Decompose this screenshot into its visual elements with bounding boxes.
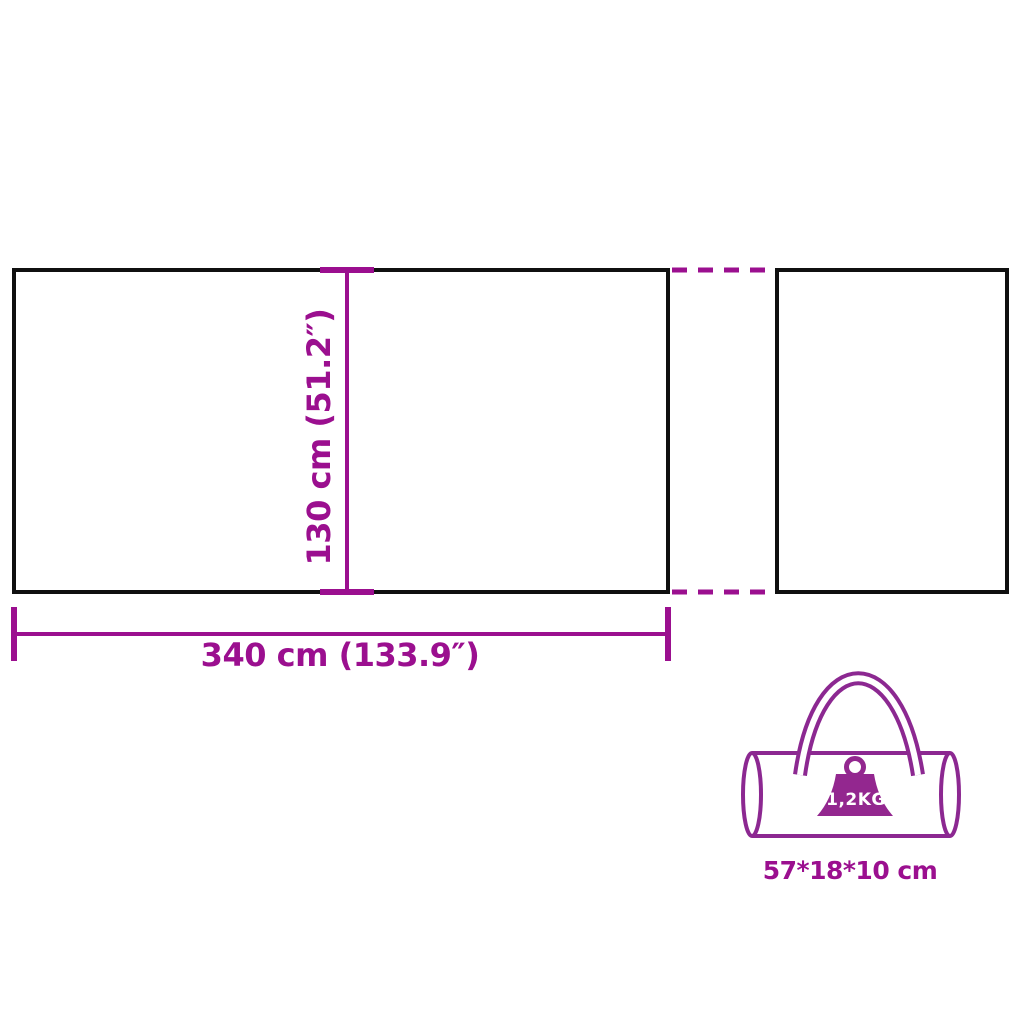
width-dimension: 340 cm (133.9″) bbox=[14, 607, 668, 674]
diagram-canvas: 130 cm (51.2″) 340 cm (133.9″) 1,2KG 57*… bbox=[0, 0, 1024, 1024]
bag-size-label: 57*18*10 cm bbox=[763, 856, 938, 885]
folded-panel-outline bbox=[777, 270, 1007, 592]
bag-left-end-cap bbox=[743, 753, 761, 836]
bag-right-end-cap bbox=[941, 753, 959, 836]
carry-bag-icon: 1,2KG 57*18*10 cm bbox=[743, 678, 959, 885]
weight-label: 1,2KG bbox=[826, 790, 886, 810]
weight-ring-icon bbox=[847, 759, 864, 776]
height-dimension-label: 130 cm (51.2″) bbox=[300, 309, 338, 566]
product-dimension-diagram: 130 cm (51.2″) 340 cm (133.9″) 1,2KG 57*… bbox=[0, 0, 1024, 1024]
width-dimension-label: 340 cm (133.9″) bbox=[201, 636, 480, 674]
main-panel-outline bbox=[14, 270, 668, 592]
